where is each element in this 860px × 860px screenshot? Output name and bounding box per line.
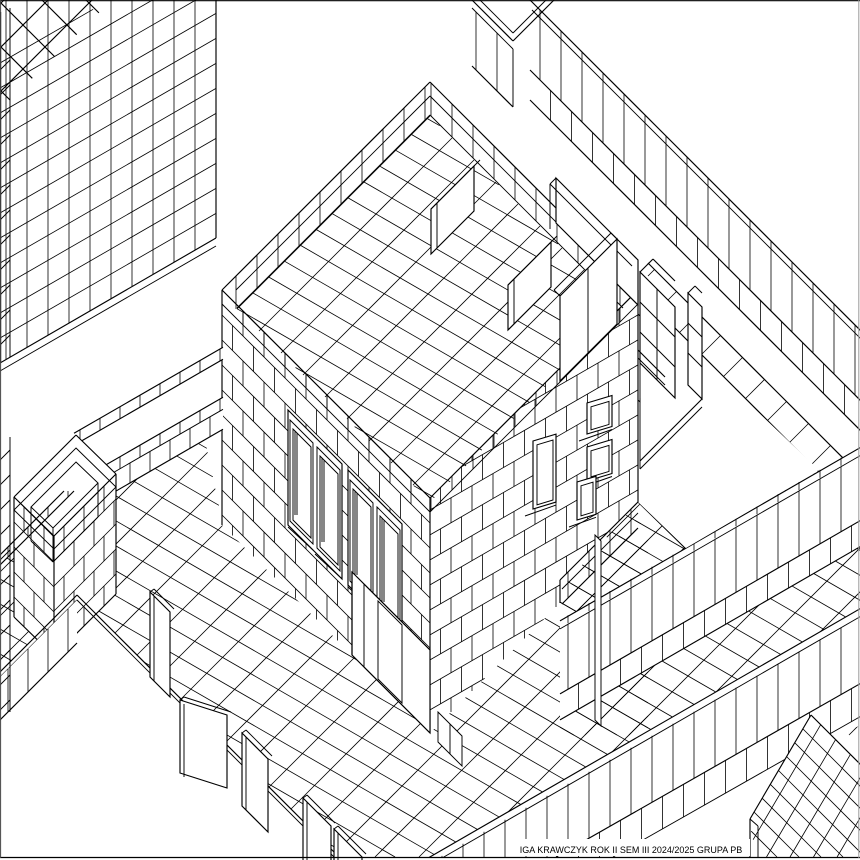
svg-text:IGA KRAWCZYK ROK II SEM III 20: IGA KRAWCZYK ROK II SEM III 2024/2025 GR… <box>520 845 743 855</box>
